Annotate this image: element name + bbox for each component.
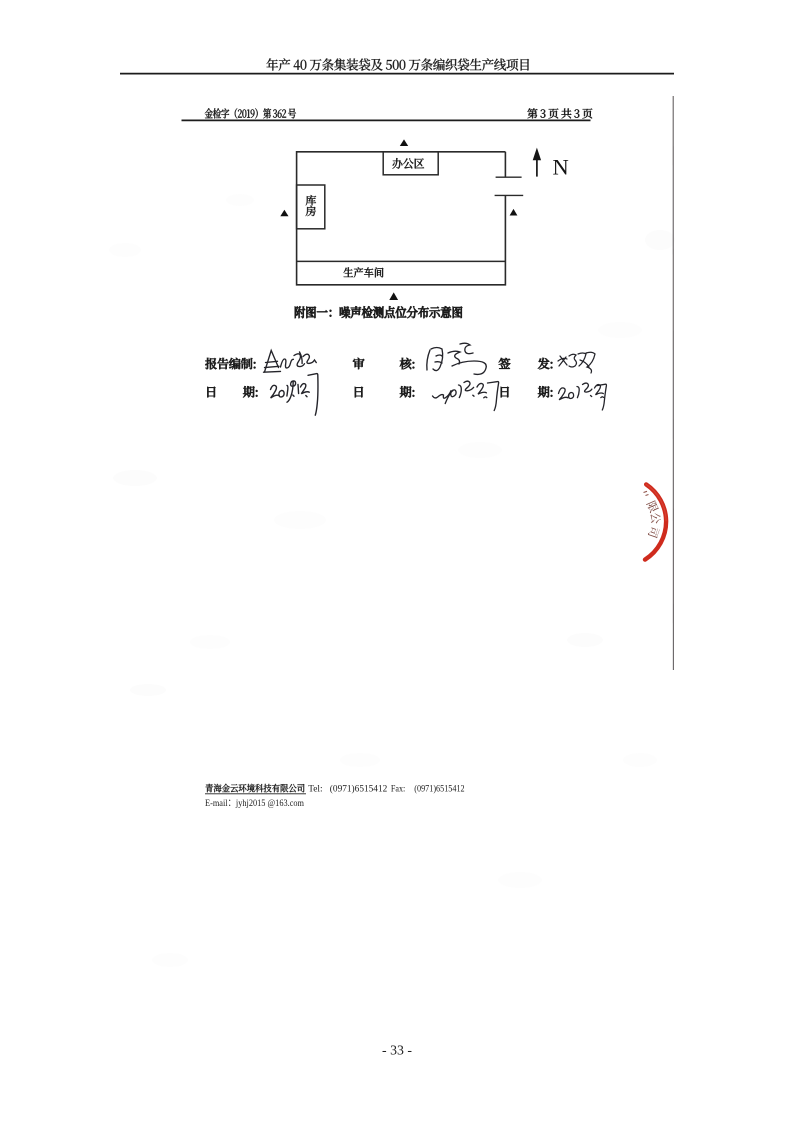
- svg-text:Tel:: Tel:: [308, 784, 322, 795]
- svg-text:Fax:: Fax:: [391, 784, 405, 795]
- svg-text:- 33 -: - 33 -: [382, 1043, 412, 1058]
- svg-text:N: N: [553, 155, 569, 180]
- svg-text:(0971)6515412: (0971)6515412: [414, 784, 464, 795]
- svg-text:(0971)6515412: (0971)6515412: [330, 784, 388, 795]
- svg-text:E-mail：jyhj2015 @163.com: E-mail：jyhj2015 @163.com: [205, 798, 304, 809]
